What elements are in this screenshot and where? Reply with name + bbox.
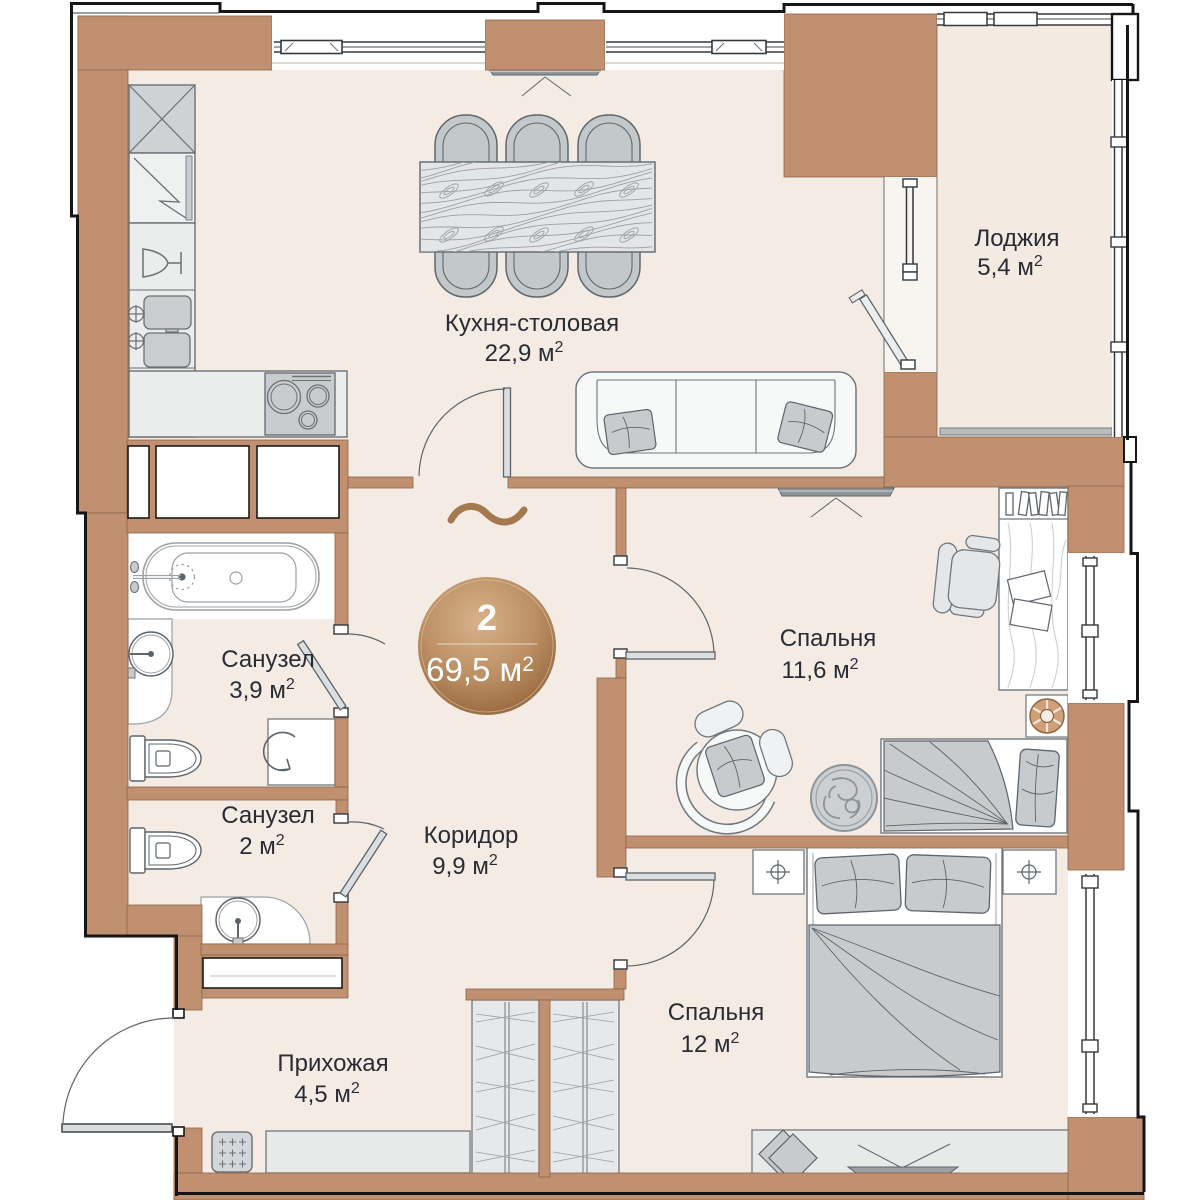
svg-text:22,9 м2: 22,9 м2	[485, 339, 564, 367]
svg-text:5,4 м2: 5,4 м2	[977, 253, 1043, 281]
svg-text:3,9 м2: 3,9 м2	[229, 676, 295, 704]
svg-text:Санузел: Санузел	[221, 802, 315, 829]
svg-text:Спальня: Спальня	[668, 999, 764, 1026]
svg-text:Лоджия: Лоджия	[974, 225, 1059, 252]
svg-text:Санузел: Санузел	[221, 646, 315, 673]
svg-text:Спальня: Спальня	[780, 625, 876, 652]
svg-text:4,5 м2: 4,5 м2	[294, 1080, 360, 1108]
svg-text:9,9 м2: 9,9 м2	[432, 852, 498, 880]
svg-text:Прихожая: Прихожая	[277, 1050, 388, 1077]
svg-text:11,6 м2: 11,6 м2	[781, 656, 858, 684]
svg-text:2: 2	[477, 597, 497, 638]
svg-text:Кухня-столовая: Кухня-столовая	[445, 310, 619, 337]
svg-text:69,5 м2: 69,5 м2	[426, 651, 534, 688]
svg-text:Коридор: Коридор	[424, 822, 519, 849]
